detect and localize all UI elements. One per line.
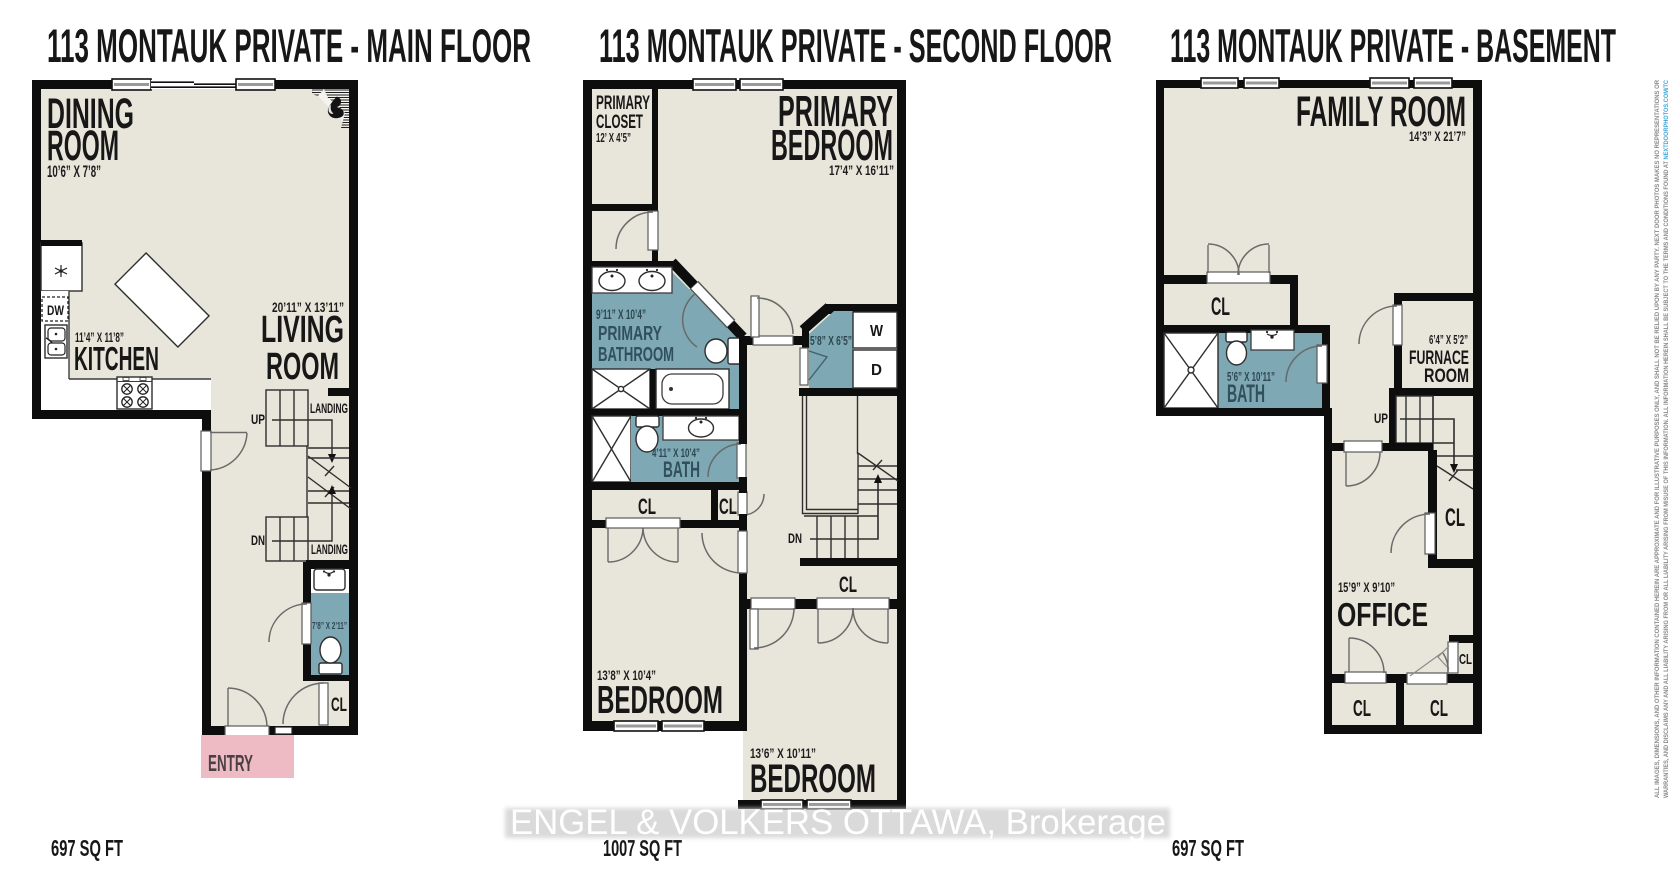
svg-text:PRIMARY: PRIMARY <box>598 323 662 345</box>
svg-text:KITCHEN: KITCHEN <box>74 340 159 377</box>
svg-text:UP: UP <box>251 411 265 427</box>
svg-text:5’8” X 6’5”: 5’8” X 6’5” <box>810 333 852 348</box>
svg-text:CL: CL <box>1353 695 1371 721</box>
svg-text:BATH: BATH <box>663 457 700 482</box>
svg-text:113 MONTAUK PRIVATE - SECOND F: 113 MONTAUK PRIVATE - SECOND FLOOR <box>599 19 1112 72</box>
svg-text:113 MONTAUK PRIVATE - MAIN FLO: 113 MONTAUK PRIVATE - MAIN FLOOR <box>47 19 531 72</box>
svg-text:CL: CL <box>1459 651 1472 668</box>
svg-text:ENTRY: ENTRY <box>208 750 253 776</box>
svg-text:CL: CL <box>839 572 857 597</box>
svg-text:BATHROOM: BATHROOM <box>598 344 674 366</box>
svg-text:CL: CL <box>719 494 737 519</box>
svg-text:OFFICE: OFFICE <box>1337 596 1428 633</box>
svg-text:CL: CL <box>638 494 656 519</box>
svg-text:BATH: BATH <box>1227 380 1265 408</box>
svg-text:DN: DN <box>788 530 802 546</box>
svg-text:LANDING: LANDING <box>310 400 348 416</box>
svg-text:CL: CL <box>1211 293 1230 321</box>
svg-text:WARRANTIES, AND DISCLAIMS ANY: WARRANTIES, AND DISCLAIMS ANY AND ALL LI… <box>1663 80 1670 798</box>
svg-text:697 SQ FT: 697 SQ FT <box>1172 835 1244 861</box>
svg-text:9’11” X 10’4”: 9’11” X 10’4” <box>596 306 646 322</box>
svg-text:7’8” X 2’11”: 7’8” X 2’11” <box>312 621 347 632</box>
svg-text:6’4” X 5’2”: 6’4” X 5’2” <box>1429 332 1468 347</box>
svg-text:LANDING: LANDING <box>311 541 348 557</box>
svg-text:BEDROOM: BEDROOM <box>597 679 723 722</box>
svg-text:CL: CL <box>1445 504 1465 532</box>
svg-text:DW: DW <box>47 302 65 318</box>
svg-text:BEDROOM: BEDROOM <box>750 757 876 801</box>
svg-text:113 MONTAUK PRIVATE - BASEMENT: 113 MONTAUK PRIVATE - BASEMENT <box>1170 19 1616 72</box>
svg-text:697 SQ FT: 697 SQ FT <box>51 835 123 861</box>
svg-text:W: W <box>870 323 884 340</box>
svg-text:ENGEL & VOLKERS OTTAWA, Broker: ENGEL & VOLKERS OTTAWA, Brokerage <box>510 803 1166 842</box>
svg-text:CL: CL <box>1430 695 1448 721</box>
svg-text:DN: DN <box>251 532 265 548</box>
svg-text:CL: CL <box>331 695 347 716</box>
svg-text:ROOM: ROOM <box>1424 366 1469 387</box>
svg-text:14’3” X 21’7”: 14’3” X 21’7” <box>1409 128 1466 144</box>
svg-text:12’ X 4’5”: 12’ X 4’5” <box>596 130 631 145</box>
svg-text:PRIMARY: PRIMARY <box>596 93 650 114</box>
svg-text:ALL IMAGES, DIMENSIONS, AND OT: ALL IMAGES, DIMENSIONS, AND OTHER INFORM… <box>1654 79 1661 798</box>
svg-text:ROOM: ROOM <box>266 346 339 388</box>
svg-text:D: D <box>871 362 882 379</box>
svg-text:15’9” X 9’10”: 15’9” X 9’10” <box>1338 579 1395 595</box>
svg-text:10’6” X 7’8”: 10’6” X 7’8” <box>47 162 101 181</box>
svg-text:UP: UP <box>1374 410 1388 426</box>
svg-text:17’4” X 16’11”: 17’4” X 16’11” <box>829 162 894 178</box>
svg-text:LIVING: LIVING <box>261 309 344 351</box>
